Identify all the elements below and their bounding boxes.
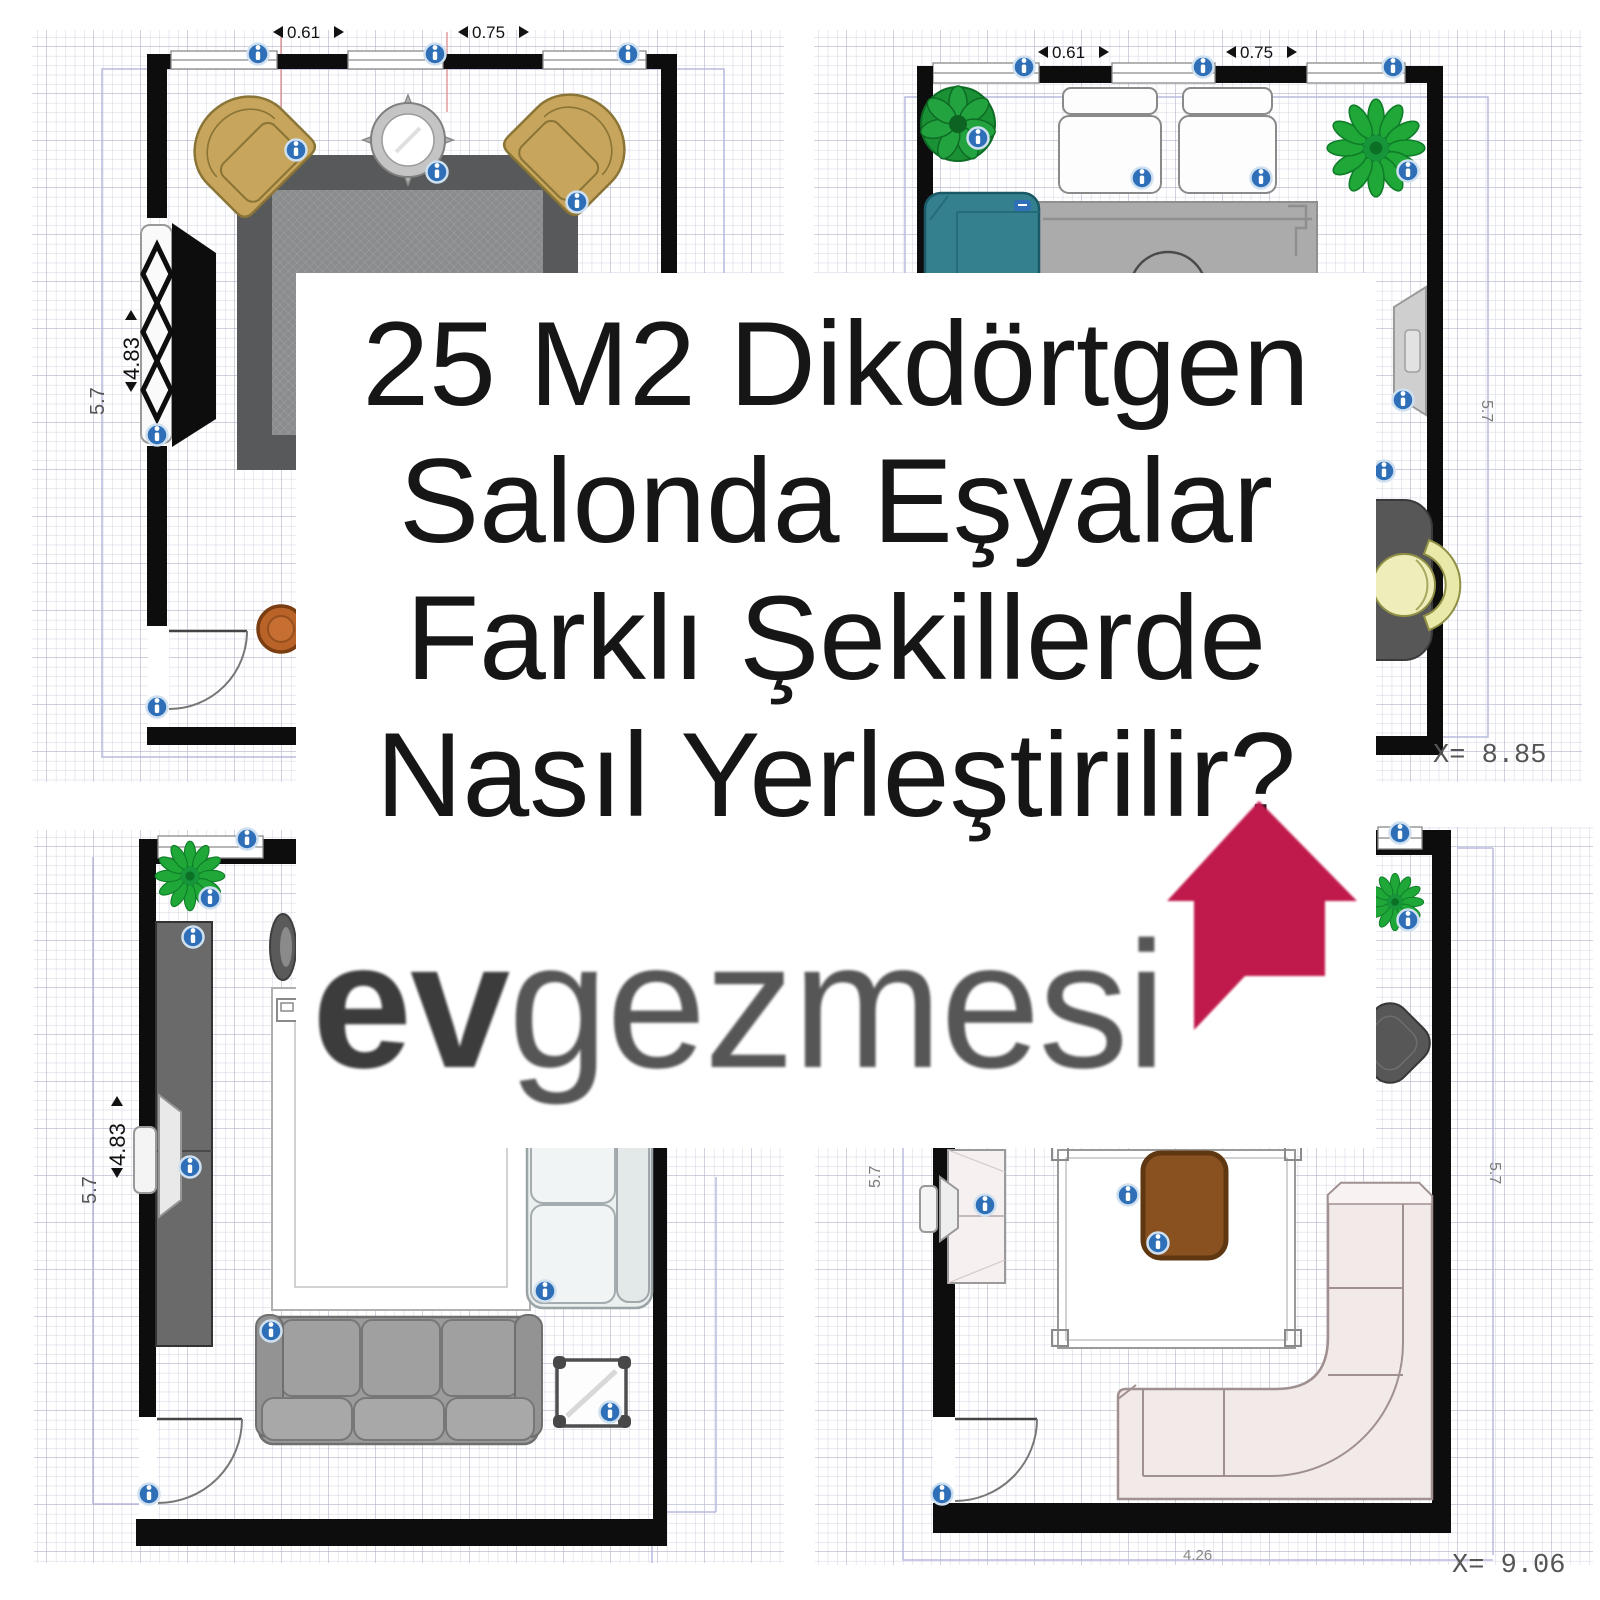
svg-text:5.7: 5.7 [1478,400,1495,422]
svg-text:X= 8.85: X= 8.85 [1433,741,1546,771]
svg-text:0.61: 0.61 [1052,43,1085,62]
svg-text:0.75: 0.75 [1240,43,1273,62]
svg-text:5.7: 5.7 [1486,1162,1503,1184]
svg-text:0.61: 0.61 [287,23,320,42]
svg-text:0.75: 0.75 [472,23,505,42]
svg-text:5.7: 5.7 [87,387,109,415]
svg-text:X= 9.06: X= 9.06 [1452,1551,1565,1581]
svg-text:5.7: 5.7 [867,1166,884,1188]
svg-text:4.83: 4.83 [119,337,144,380]
svg-text:4.26: 4.26 [1183,1547,1212,1564]
svg-text:5.7: 5.7 [79,1176,101,1204]
svg-text:4.83: 4.83 [105,1123,130,1166]
